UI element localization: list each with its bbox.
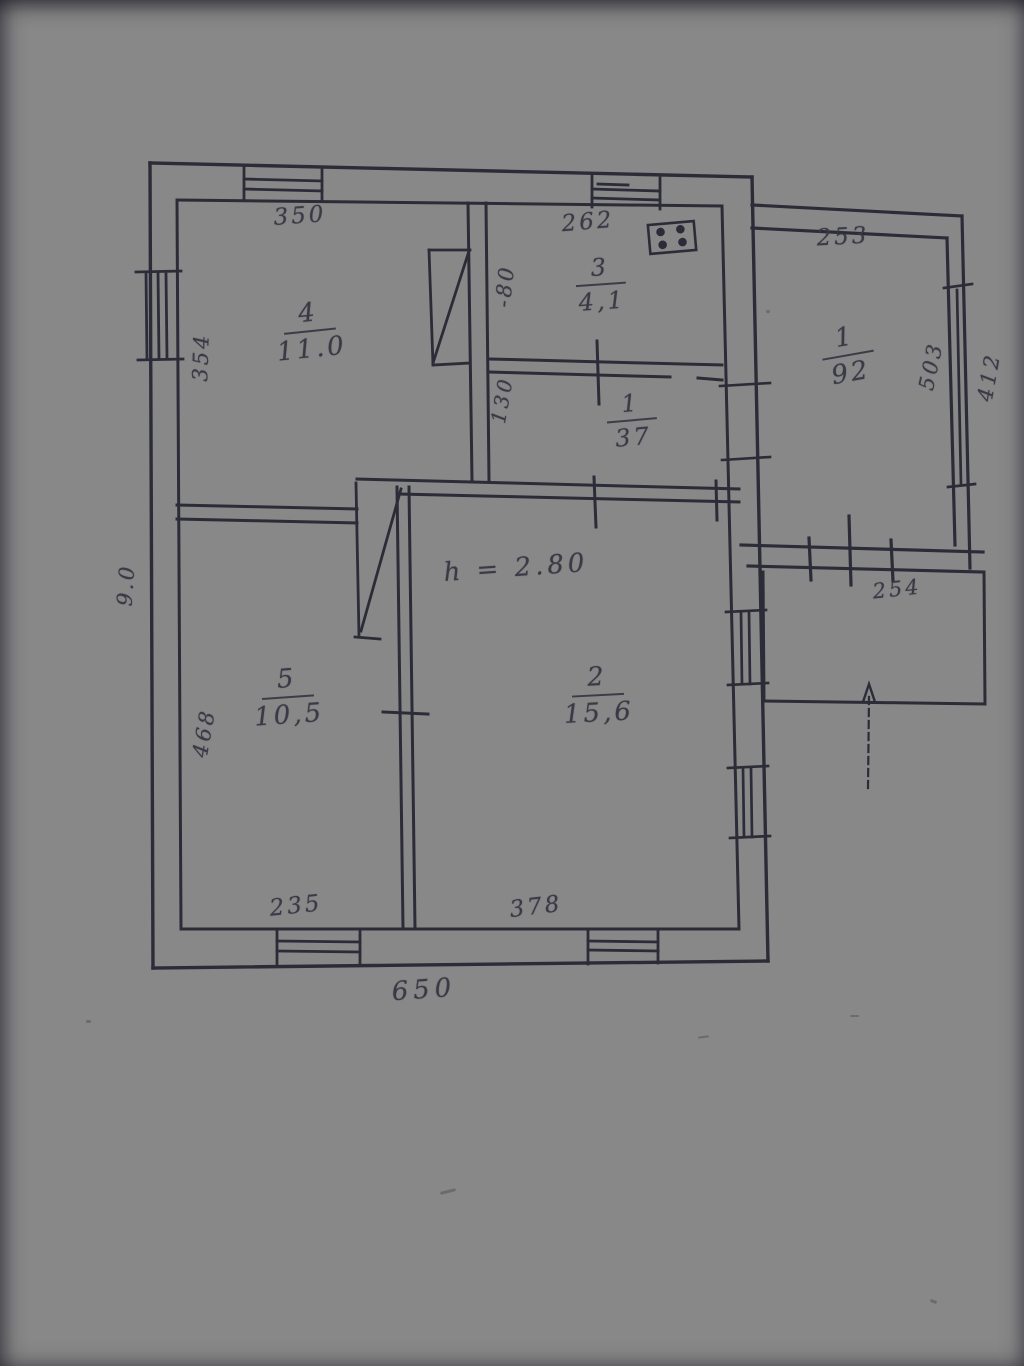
dim-annex-top: 253 <box>816 223 870 252</box>
window-top-left-icon <box>244 166 322 201</box>
dim-bottom-overall: 650 <box>391 973 458 1007</box>
window-bottom-left-icon <box>277 930 360 966</box>
room-area: 10,5 <box>253 696 325 732</box>
paper-speck <box>86 1020 91 1023</box>
dim-left-overall: 9.0 <box>113 563 140 607</box>
entrance-arrow-icon <box>863 684 875 788</box>
room-area: 92 <box>829 353 873 391</box>
wall-room5-room2 <box>383 487 428 928</box>
dim-bottom-left: 235 <box>268 890 323 921</box>
door-leaf-room4-icon <box>429 250 470 365</box>
room-number: 3 <box>574 254 626 288</box>
scanned-floorplan-photo: 411.0 34,1 137 192 510,5 215,6 h = 2.80 … <box>0 0 1024 1366</box>
room-label-annex-1: 192 <box>817 320 879 392</box>
dim-porch-width: 254 <box>871 574 922 603</box>
paper-speck <box>850 1015 859 1017</box>
window-bottom-right-icon <box>588 930 658 964</box>
room-number: 5 <box>260 664 314 700</box>
room-label-2: 215,6 <box>561 662 634 729</box>
room-area: 11.0 <box>275 329 348 367</box>
wall-hall-room2 <box>357 477 739 527</box>
dim-room3-top: 262 <box>561 207 616 238</box>
paper-speck <box>766 310 770 313</box>
window-left-wall-icon <box>136 271 183 360</box>
wall-room4-room3 <box>468 203 489 480</box>
annex-walls <box>741 205 983 585</box>
room-label-4: 411.0 <box>272 297 348 368</box>
dim-door-width: -80 <box>491 263 519 308</box>
room-area: 15,6 <box>563 695 634 730</box>
floorplan-drawing <box>0 0 1024 1366</box>
room-label-hall-1: 137 <box>604 387 659 453</box>
door-leaf-hall-icon <box>355 483 401 639</box>
dim-left-upper: 354 <box>188 332 214 382</box>
gas-stove-icon <box>648 221 696 254</box>
wall-room4-room5 <box>177 505 357 523</box>
dim-room4-top: 350 <box>273 201 328 231</box>
room-number: 1 <box>604 389 657 423</box>
room-area: 4,1 <box>578 284 627 316</box>
room-label-5: 510,5 <box>251 664 325 732</box>
room-area: 37 <box>614 420 653 452</box>
room-number: 2 <box>571 663 624 698</box>
room-label-3: 34,1 <box>574 252 628 317</box>
